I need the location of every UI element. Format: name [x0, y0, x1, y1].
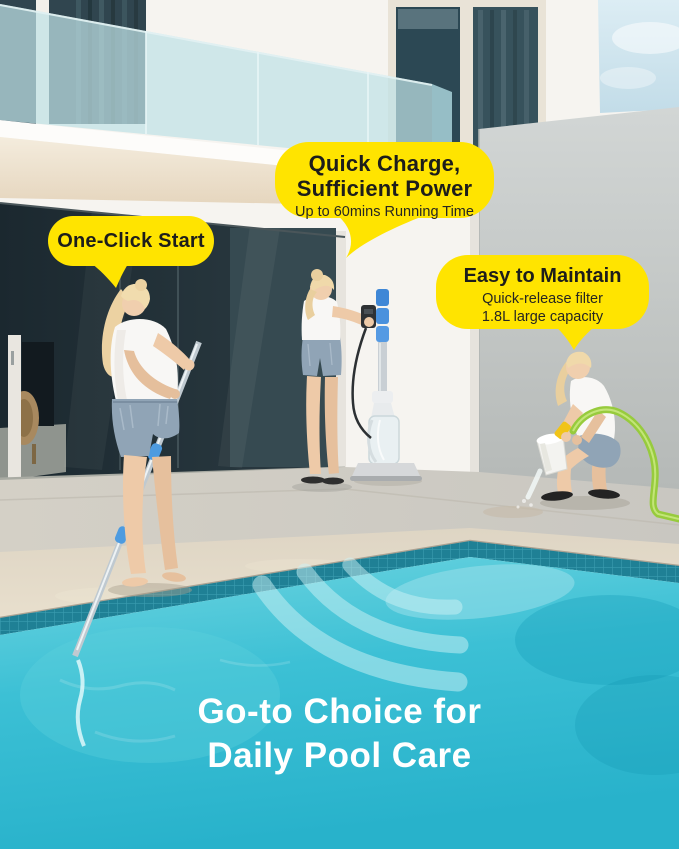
charger-detail — [364, 309, 373, 314]
base-plate — [352, 463, 420, 476]
sky-patch — [598, 0, 679, 113]
hand — [364, 317, 374, 327]
pole-segment-blue — [376, 308, 389, 324]
callout-tail — [92, 264, 128, 288]
callout-title: One-Click Start — [48, 216, 214, 266]
sky — [598, 0, 679, 113]
callout-subtitle: Quick-release filter 1.8L large capacity — [436, 290, 649, 326]
callout-quick-charge: Quick Charge, Sufficient Power Up to 60m… — [275, 142, 494, 218]
door-handle — [11, 351, 14, 365]
callout-tail — [556, 327, 594, 350]
shadow — [292, 482, 352, 492]
hand — [184, 360, 195, 371]
window-mullion — [460, 7, 473, 150]
callout-title: Easy to Maintain — [436, 265, 649, 287]
hand — [572, 435, 582, 445]
pool-caption: Go-to Choice for Daily Pool Care — [0, 690, 679, 778]
callout-easy-to-maintain: Easy to Maintain Quick-release filter 1.… — [436, 255, 649, 329]
pole-segment-blue — [376, 326, 389, 342]
interior-ceiling-reflection — [398, 9, 458, 29]
callout-tail — [338, 216, 423, 258]
flip-flop — [301, 477, 325, 484]
pool-care-marketing-image: Quick Charge, Sufficient Power Up to 60m… — [0, 0, 679, 849]
door-frame-stile-left — [8, 335, 21, 481]
cloud — [600, 67, 656, 89]
hair-bun — [311, 269, 323, 281]
hand — [561, 432, 571, 442]
flip-flop — [322, 478, 344, 485]
base-underside — [350, 476, 422, 481]
collar — [372, 391, 393, 403]
callout-title: Quick Charge, Sufficient Power — [275, 151, 494, 201]
wet-stain — [483, 506, 543, 518]
pole-segment-blue — [376, 289, 389, 306]
hair-bun — [135, 279, 147, 291]
hand — [170, 389, 180, 399]
callout-one-click-start: One-Click Start — [48, 216, 214, 266]
shadow — [108, 583, 192, 597]
